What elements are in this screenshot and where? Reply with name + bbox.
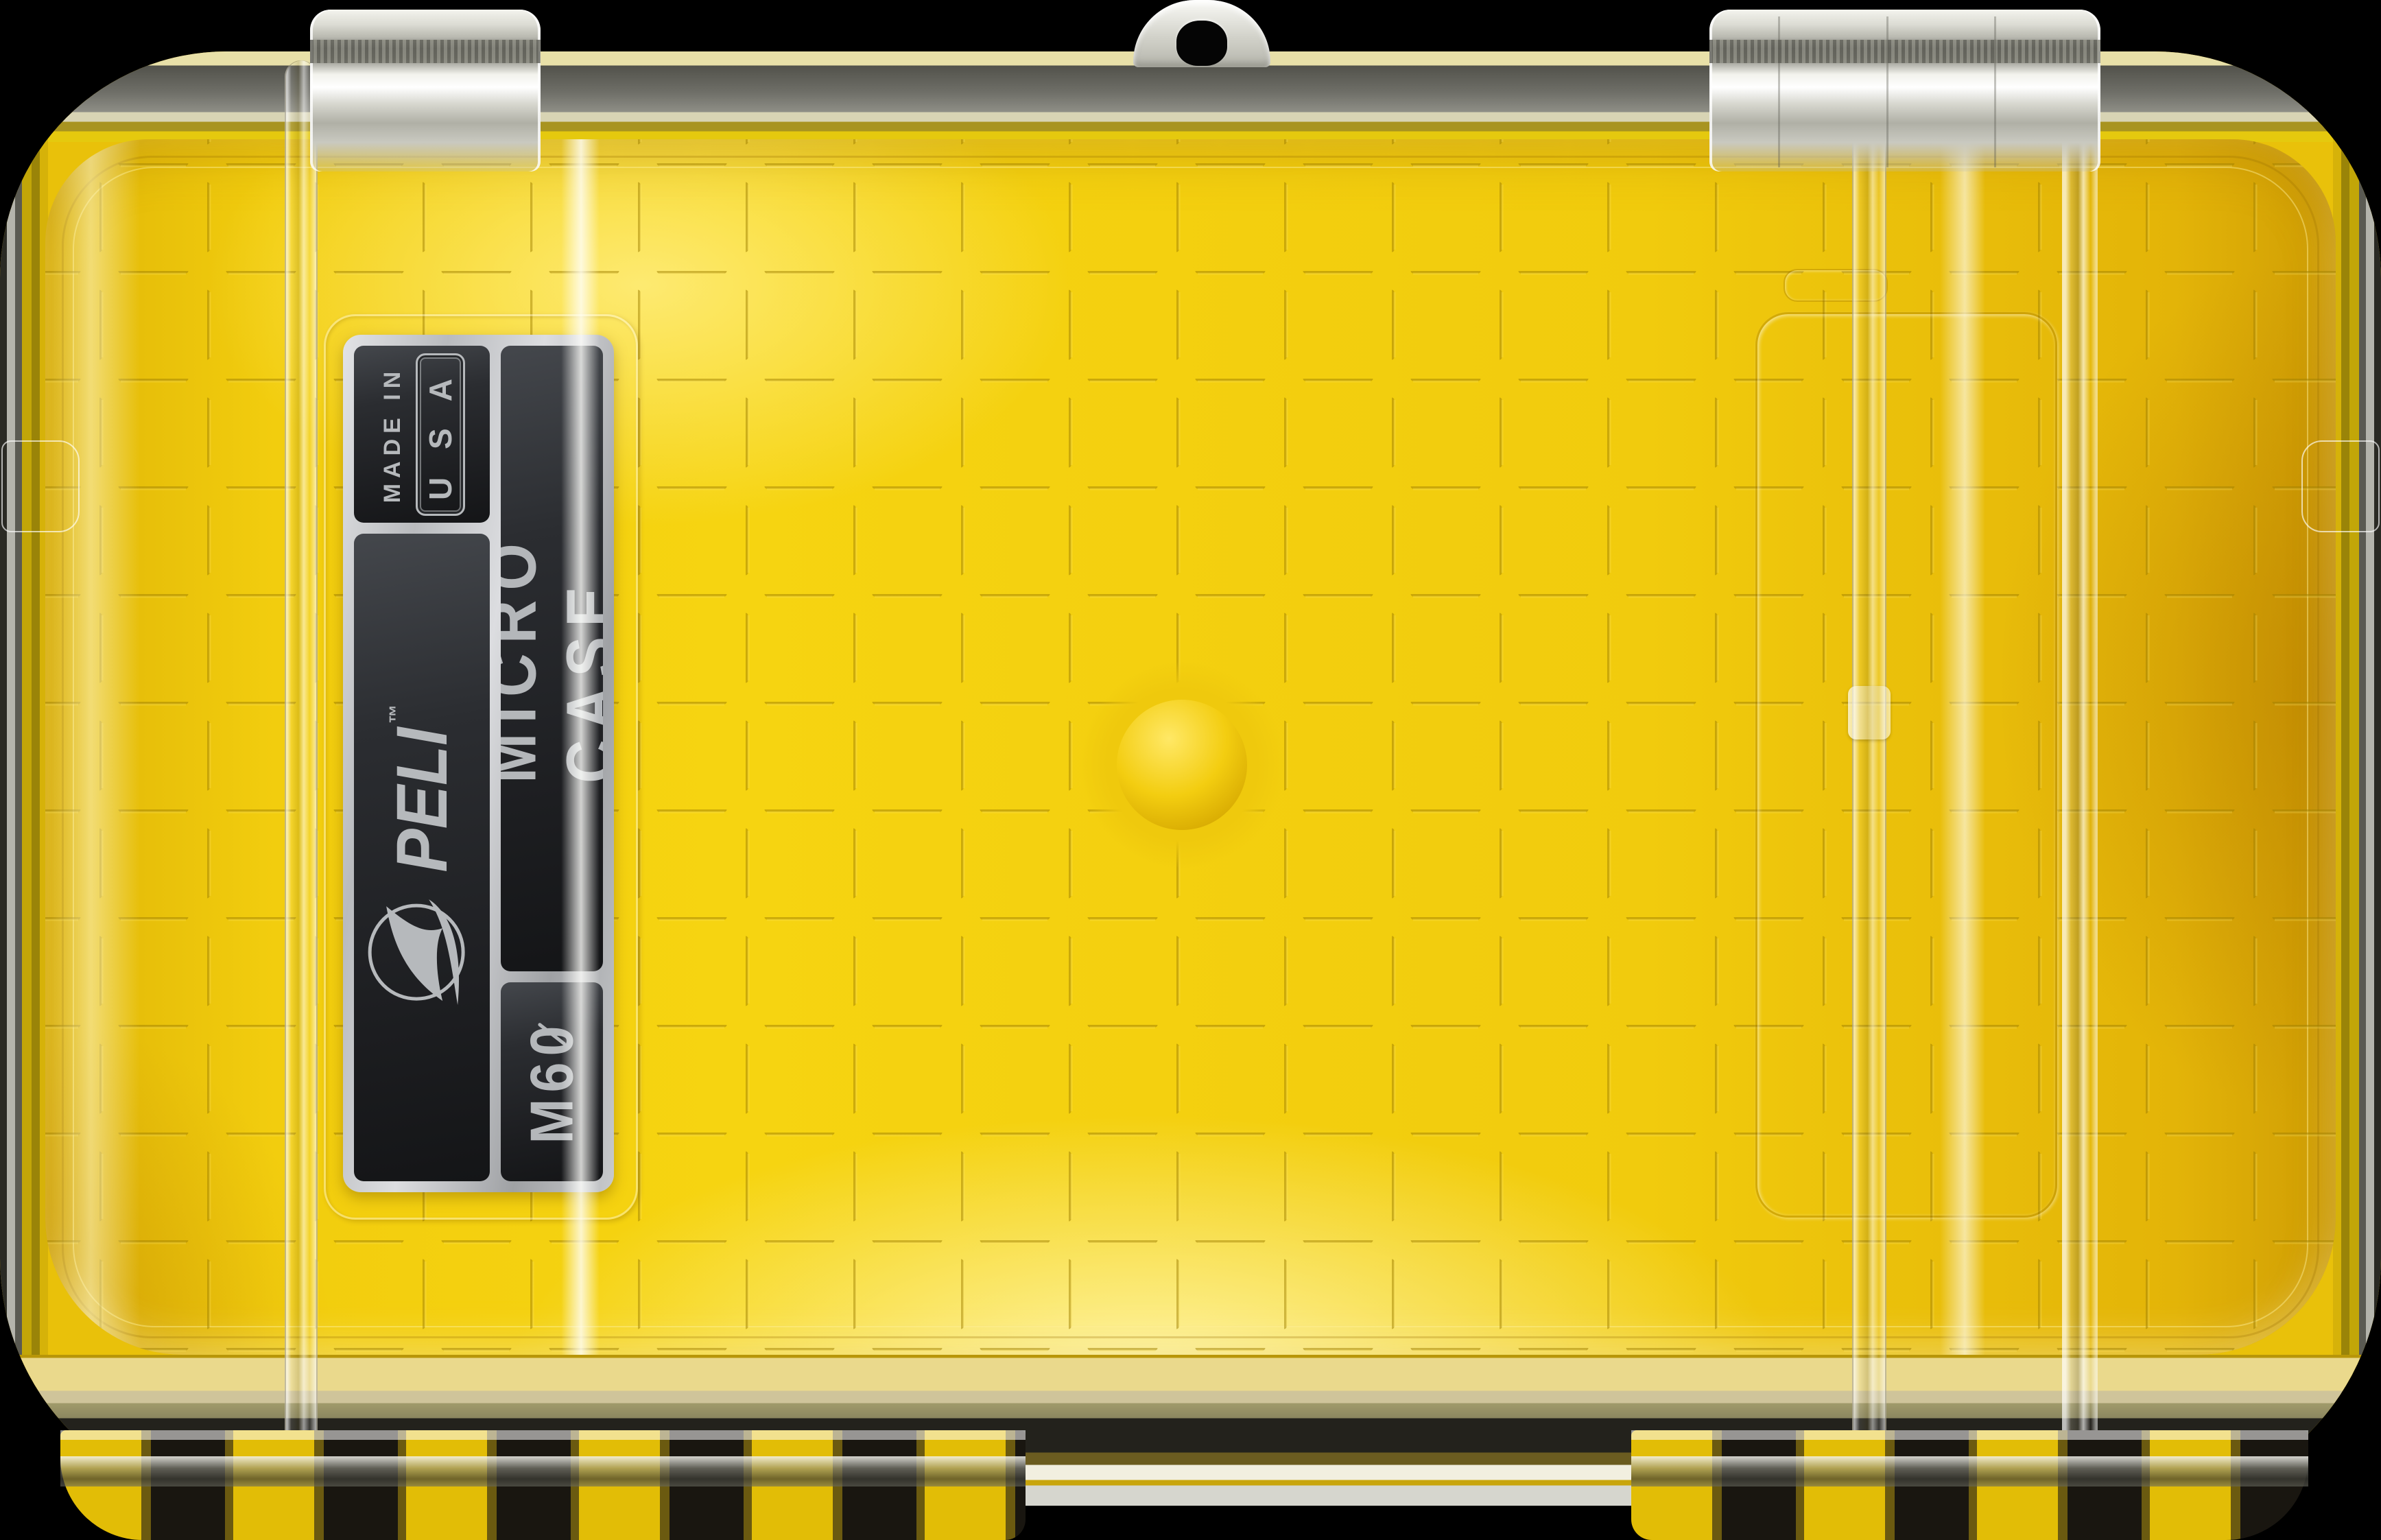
latch-seam: [1778, 16, 1780, 167]
specular-highlight-right: [1940, 139, 1985, 1355]
peli-emblem-icon: [360, 894, 484, 1010]
hinge-pin-bar: [60, 1456, 1026, 1486]
made-in-usa-cell: MADE IN U S A: [354, 346, 490, 523]
side-tab-right: [2301, 440, 2380, 532]
latch-recess-outline: [1755, 312, 2057, 1218]
hinge-housing: [310, 10, 541, 171]
case-side-wall-right: [2333, 51, 2381, 1506]
usa-badge: U S A: [416, 353, 465, 516]
latch-seam: [1886, 16, 1888, 167]
lid-rail-right: [2062, 82, 2098, 1444]
latch-pin-texture: [1709, 40, 2100, 63]
peli-wordmark: PELI™: [383, 704, 462, 876]
label-left-column: MADE IN U S A PELI™: [354, 346, 490, 1181]
knuckle-gloss: [60, 1430, 1026, 1440]
lanyard-eyelet-hole: [1176, 21, 1227, 66]
specular-highlight-left: [561, 139, 600, 1355]
knuckle-gloss: [1631, 1430, 2308, 1440]
brand-logo-cell: PELI™: [354, 534, 490, 1181]
usa-text: U S A: [423, 369, 458, 500]
side-tab-left: [1, 440, 80, 532]
latch-strap-clip: [1848, 686, 1891, 739]
hinge-strap: [285, 60, 318, 1461]
latch-housing: [1709, 10, 2100, 171]
bottom-latch-knuckles: [1631, 1430, 2308, 1540]
product-photo-stage: MADE IN U S A PELI™: [0, 0, 2381, 1540]
latch-strap: [1852, 60, 1886, 1461]
center-dome: [1117, 700, 1247, 830]
case-side-wall-left: [0, 51, 48, 1506]
made-in-text: MADE IN: [379, 366, 406, 503]
latch-pin-bar: [1631, 1456, 2308, 1486]
hinge-pin-texture: [310, 40, 541, 63]
specular-column-left: [51, 139, 140, 1355]
lanyard-eyelet: [1133, 0, 1270, 67]
trademark-symbol: ™: [387, 704, 406, 724]
latch-seam: [1994, 16, 1996, 167]
bottom-hinge-knuckles: [60, 1430, 1026, 1540]
